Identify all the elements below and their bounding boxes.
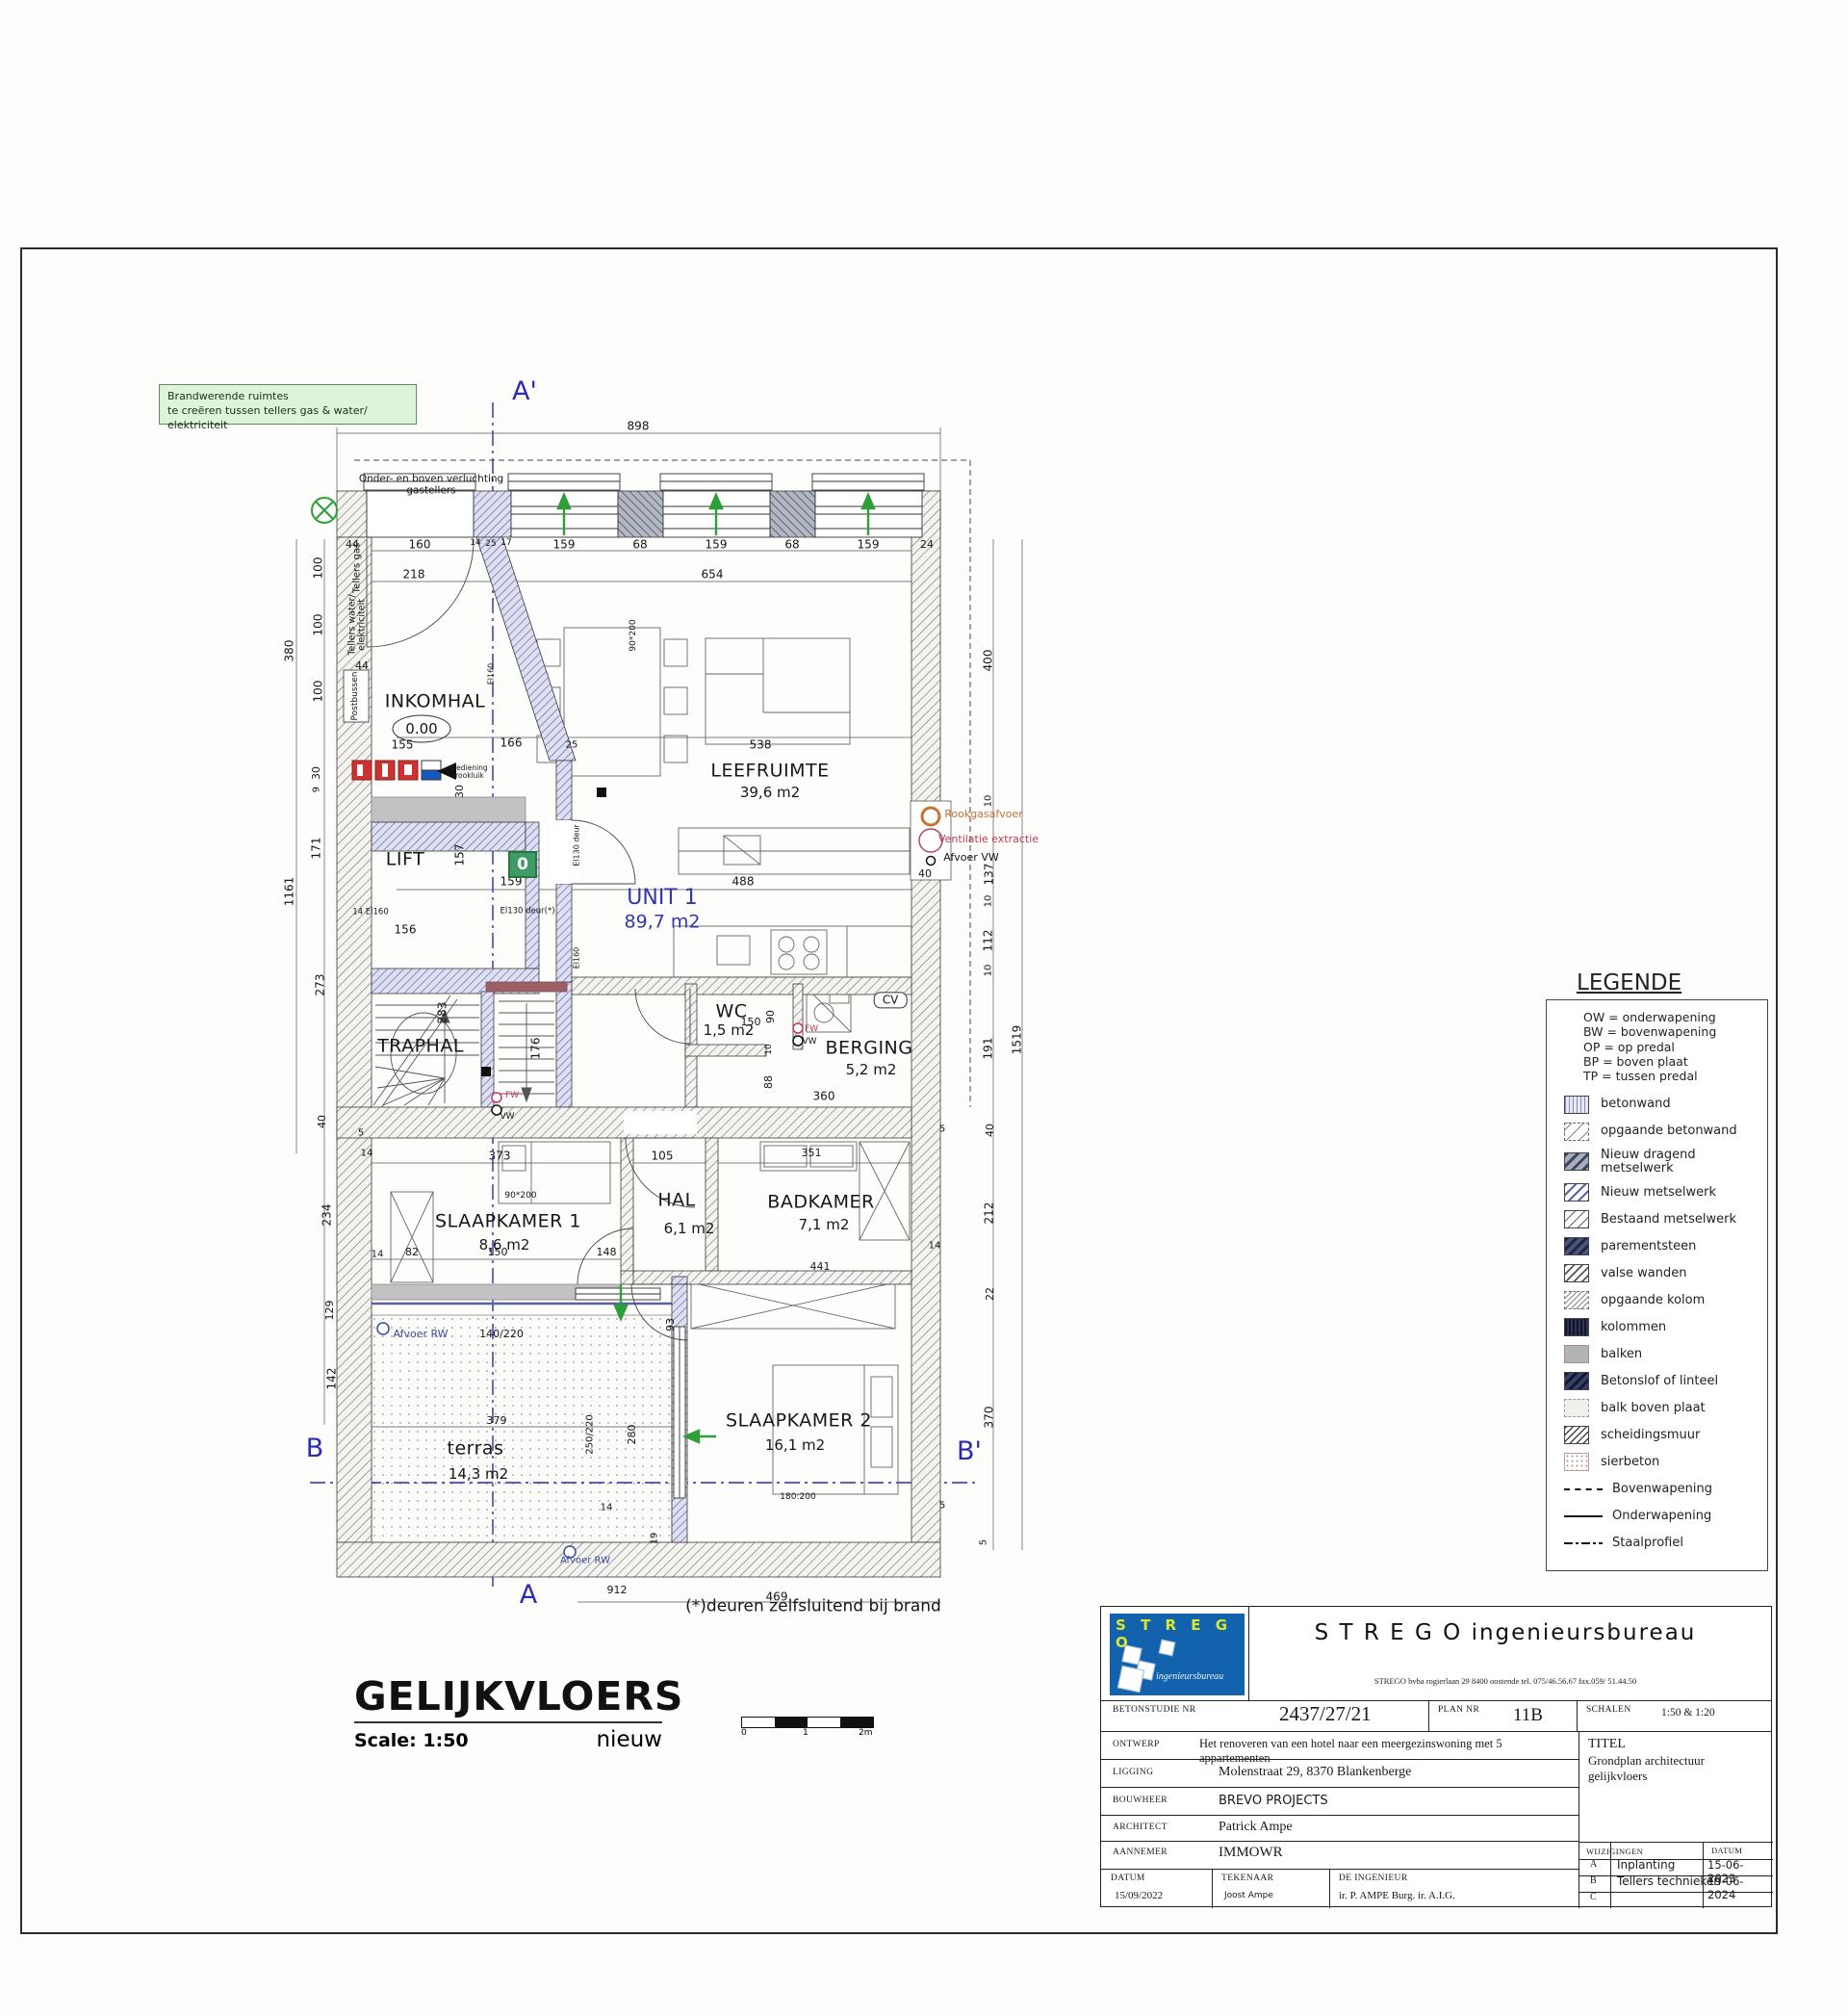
ingenieur-label: DE INGENIEUR xyxy=(1339,1874,1408,1883)
dining-table xyxy=(564,628,660,776)
kitchen-counter xyxy=(674,926,911,977)
terras-floor xyxy=(372,1315,672,1542)
postbox xyxy=(344,670,369,722)
scale-tick: 2m xyxy=(859,1728,873,1738)
legend-item-label: balken xyxy=(1601,1348,1642,1361)
ls-solid-icon xyxy=(1564,1515,1603,1517)
legend-line-label: Bovenwapening xyxy=(1612,1483,1712,1496)
sw-scheidingsmuur-icon xyxy=(1564,1426,1589,1444)
datum-value: 15/09/2022 xyxy=(1115,1890,1163,1901)
legend-title: LEGENDE xyxy=(1577,970,1768,995)
legend-item-label: scheidingsmuur xyxy=(1601,1429,1700,1442)
legend-item: Bestaand metselwerk xyxy=(1564,1210,1767,1229)
stove xyxy=(771,930,827,974)
tekenaar-value: Joost Ampe xyxy=(1224,1891,1273,1900)
datum-col-label: DATUM xyxy=(1711,1846,1742,1855)
legend-item-label: betonwand xyxy=(1601,1098,1671,1111)
sw-valse-wanden-icon xyxy=(1564,1264,1589,1282)
revision-id: A xyxy=(1590,1859,1597,1870)
titel-value: Grondplan architectuur gelijkvloers xyxy=(1588,1753,1766,1784)
legend-item-label: valse wanden xyxy=(1601,1267,1687,1280)
logo-subtitle: ingenieursbureau xyxy=(1156,1671,1223,1682)
ontwerp-value: Het renoveren van een hotel naar een mee… xyxy=(1199,1737,1575,1766)
legend-abbreviation: OP = op predal xyxy=(1583,1040,1767,1054)
legend-line-label: Onderwapening xyxy=(1612,1510,1711,1523)
revision-desc: Inplanting xyxy=(1617,1858,1675,1872)
legend-abbreviations: OW = onderwapeningBW = bovenwapeningOP =… xyxy=(1547,1010,1767,1083)
bed-1 xyxy=(499,1142,610,1203)
legend-line-items: BovenwapeningOnderwapeningStaalprofiel xyxy=(1547,1480,1767,1553)
revision-date: 19-06-2024 xyxy=(1707,1874,1771,1901)
legend-abbreviation: BW = bovenwapening xyxy=(1583,1024,1767,1039)
legend-item-label: balk boven plaat xyxy=(1601,1402,1706,1415)
ls-dashed-icon xyxy=(1564,1488,1603,1490)
sw-kolommen-icon xyxy=(1564,1318,1589,1336)
scale-bar: 0 1 2m xyxy=(741,1717,874,1740)
legend-item-label: sierbeton xyxy=(1601,1456,1659,1469)
legend-item: Betonslof of linteel xyxy=(1564,1372,1767,1391)
legend-item: Nieuw dragend metselwerk xyxy=(1564,1149,1767,1175)
titel-label: TITEL xyxy=(1588,1737,1626,1752)
sw-balk-boven-plaat-icon xyxy=(1564,1399,1589,1417)
drawing-title-block: GELIJKVLOERS Scale: 1:50 nieuw xyxy=(354,1673,662,1752)
bovenwapening-dashed-line xyxy=(354,460,970,1107)
betonstudie-label: BETONSTUDIE NR xyxy=(1113,1705,1195,1715)
legend-item: sierbeton xyxy=(1564,1453,1767,1472)
sw-betonslof-icon xyxy=(1564,1372,1589,1390)
scale-tick: 0 xyxy=(741,1728,747,1738)
plannr-value: 11B xyxy=(1513,1705,1543,1726)
bed-2 xyxy=(773,1365,898,1494)
sw-nieuw-metselwerk-icon xyxy=(1564,1183,1589,1202)
company-header: S T R E G O ingenieursbureau xyxy=(1250,1620,1760,1645)
ligging-value: Molenstraat 29, 8370 Blankenberge xyxy=(1219,1765,1411,1780)
ingenieur-value: ir. P. AMPE Burg. ir. A.I.G. xyxy=(1339,1890,1455,1901)
legend-line-item: Staalprofiel xyxy=(1564,1534,1767,1553)
status-label: nieuw xyxy=(596,1727,662,1752)
scale-bar-ticks: 0 1 2m xyxy=(741,1728,874,1740)
ls-dashdot-icon xyxy=(1564,1542,1603,1544)
legend-item: parementsteen xyxy=(1564,1237,1767,1256)
title-block: S T R E G O ingenieursbureau S T R E G O… xyxy=(1100,1606,1772,1907)
sw-parementsteen-icon xyxy=(1564,1237,1589,1255)
legend-abbreviation: TP = tussen predal xyxy=(1583,1069,1767,1083)
strego-logo: S T R E G O ingenieursbureau xyxy=(1110,1614,1245,1695)
legend-item: balken xyxy=(1564,1345,1767,1364)
legend-item: opgaande betonwand xyxy=(1564,1122,1767,1141)
floor-title: GELIJKVLOERS xyxy=(354,1673,662,1719)
schalen-value: 1:50 & 1:20 xyxy=(1661,1707,1715,1719)
legend-item-label: opgaande kolom xyxy=(1601,1294,1705,1307)
legend-item-label: Bestaand metselwerk xyxy=(1601,1213,1736,1227)
title-rule xyxy=(354,1721,662,1723)
logo-cube-icon xyxy=(1117,1666,1144,1693)
revision-id: B xyxy=(1590,1875,1597,1886)
logo-cube-icon xyxy=(1159,1640,1176,1657)
legend-line-item: Onderwapening xyxy=(1564,1507,1767,1526)
architect-label: ARCHITECT xyxy=(1113,1822,1168,1832)
legend-item-label: kolommen xyxy=(1601,1321,1666,1334)
ligging-label: LIGGING xyxy=(1113,1768,1153,1777)
legend-item-label: Betonslof of linteel xyxy=(1601,1375,1718,1388)
company-address: STREGO bvba rogierlaan 29 8400 oostende … xyxy=(1250,1676,1760,1686)
aannemer-value: IMMOWR xyxy=(1219,1845,1283,1861)
legend-item: scheidingsmuur xyxy=(1564,1426,1767,1445)
bathroom-sinks xyxy=(760,1142,857,1171)
wijzigingen-label: WIJZIGINGEN xyxy=(1586,1847,1643,1856)
legend-item: balk boven plaat xyxy=(1564,1399,1767,1418)
legend-item: valse wanden xyxy=(1564,1264,1767,1283)
legend-abbreviation: BP = boven plaat xyxy=(1583,1054,1767,1069)
legend-item-label: Nieuw metselwerk xyxy=(1601,1186,1716,1200)
legend-item: opgaande kolom xyxy=(1564,1291,1767,1310)
revision-desc: Tellers technieken xyxy=(1617,1874,1721,1888)
scale-bar-segments xyxy=(741,1717,874,1728)
legend-box: OW = onderwapeningBW = bovenwapeningOP =… xyxy=(1546,999,1768,1571)
legend-items: betonwandopgaande betonwandNieuw dragend… xyxy=(1547,1095,1767,1471)
legend-item: kolommen xyxy=(1564,1318,1767,1337)
sw-dragend-icon xyxy=(1564,1152,1589,1171)
sw-balken-icon xyxy=(1564,1345,1589,1363)
drawing-sheet: Brandwerende ruimtes te creëren tussen t… xyxy=(0,0,1848,2016)
betonstudie-value: 2437/27/21 xyxy=(1279,1702,1372,1726)
scale-label: Scale: 1:50 xyxy=(354,1730,469,1751)
bouwheer-value: BREVO PROJECTS xyxy=(1219,1794,1328,1808)
legend-line-item: Bovenwapening xyxy=(1564,1480,1767,1499)
aannemer-label: AANNEMER xyxy=(1113,1848,1168,1857)
sw-opgaande-kolom-icon xyxy=(1564,1291,1589,1309)
schalen-label: SCHALEN xyxy=(1586,1705,1631,1715)
architect-value: Patrick Ampe xyxy=(1219,1820,1293,1835)
revision-id: C xyxy=(1590,1892,1597,1902)
legend-item-label: Nieuw dragend metselwerk xyxy=(1601,1149,1696,1175)
legend-item-label: opgaande betonwand xyxy=(1601,1124,1737,1138)
sw-opgaande-betonwand-icon xyxy=(1564,1123,1589,1141)
legend: LEGENDE OW = onderwapeningBW = bovenwape… xyxy=(1546,970,1768,1571)
sw-betonwand-icon xyxy=(1564,1096,1589,1114)
datum-label: DATUM xyxy=(1111,1874,1145,1883)
scale-tick: 1 xyxy=(803,1728,808,1738)
sw-sierbeton-icon xyxy=(1564,1453,1589,1471)
sofa xyxy=(706,638,850,744)
plannr-label: PLAN NR xyxy=(1438,1705,1479,1715)
legend-item: betonwand xyxy=(1564,1095,1767,1114)
fire-equipment-icons xyxy=(352,761,456,780)
legend-abbreviation: OW = onderwapening xyxy=(1583,1010,1767,1024)
legend-line-label: Staalprofiel xyxy=(1612,1537,1683,1550)
bouwheer-label: BOUWHEER xyxy=(1113,1796,1168,1805)
legend-item: Nieuw metselwerk xyxy=(1564,1183,1767,1202)
gas-meter-icon xyxy=(312,498,337,523)
ontwerp-label: ONTWERP xyxy=(1113,1740,1160,1749)
sw-bestaand-icon xyxy=(1564,1210,1589,1228)
level-marker xyxy=(393,715,450,742)
stairs xyxy=(373,995,554,1109)
tekenaar-label: TEKENAAR xyxy=(1221,1874,1273,1883)
legend-item-label: parementsteen xyxy=(1601,1240,1696,1254)
